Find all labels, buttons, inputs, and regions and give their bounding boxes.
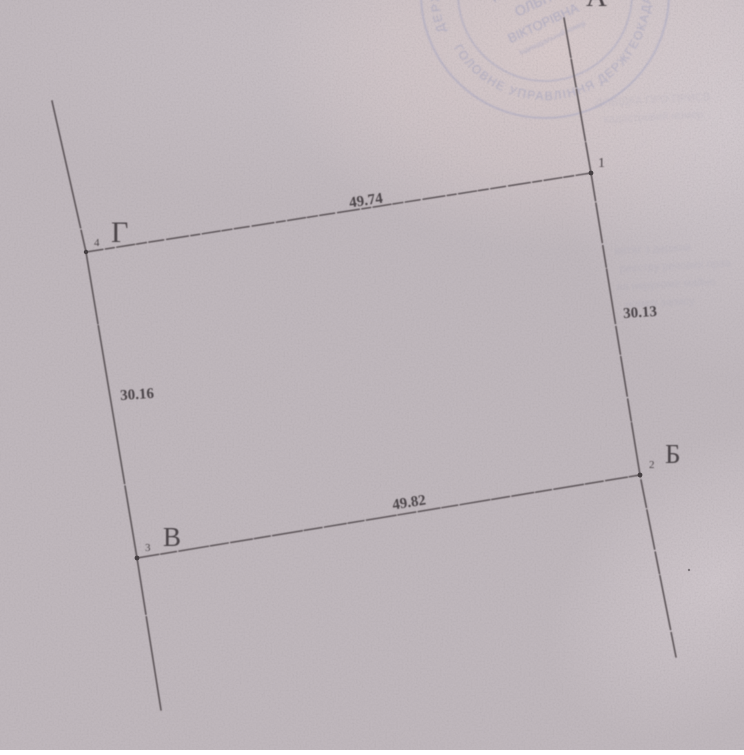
svg-text:В: В — [163, 522, 181, 552]
svg-text:1: 1 — [598, 156, 605, 171]
svg-text:Г: Г — [111, 216, 128, 249]
svg-text:3: 3 — [145, 542, 151, 554]
svg-text:30.13: 30.13 — [623, 304, 658, 322]
svg-text:А: А — [586, 0, 607, 13]
svg-text:2: 2 — [649, 459, 655, 471]
svg-text:4: 4 — [94, 237, 100, 249]
svg-text:30.16: 30.16 — [120, 386, 155, 404]
svg-text:Б: Б — [665, 439, 681, 469]
